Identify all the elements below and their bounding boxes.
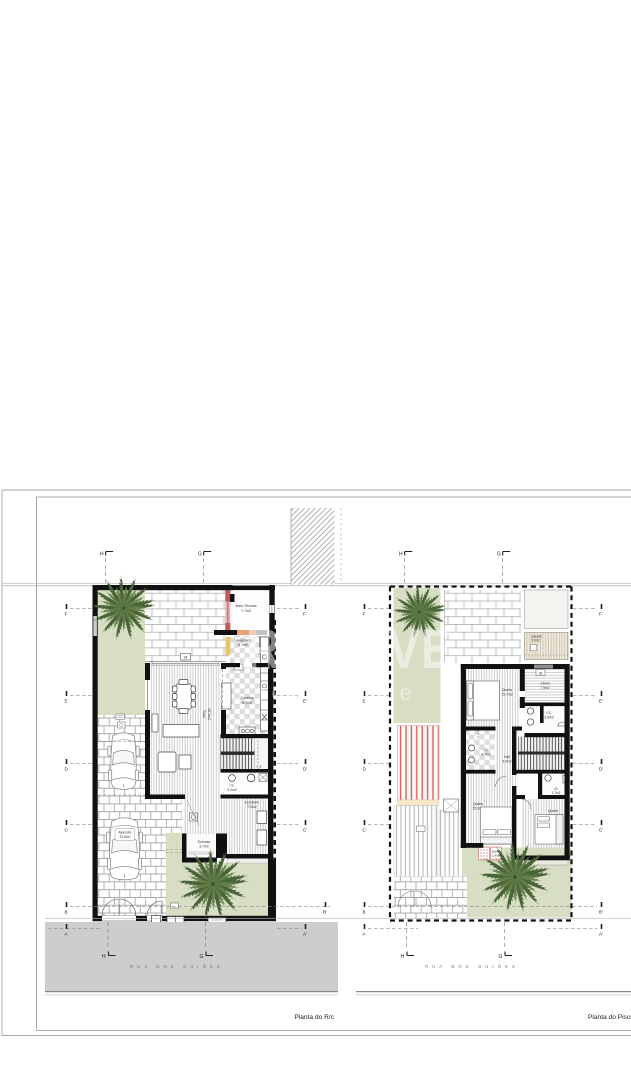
svg-text:H: H <box>100 552 104 558</box>
svg-text:Alpendre: Alpendre <box>118 831 131 835</box>
svg-text:real estate: real estate <box>259 680 417 705</box>
svg-text:Quarto: Quarto <box>502 688 512 692</box>
svg-text:B': B' <box>323 910 327 915</box>
svg-text:Cozinha: Cozinha <box>240 696 253 700</box>
svg-text:H: H <box>399 552 403 558</box>
svg-text:B: B <box>363 910 366 915</box>
svg-text:RUA DOS GUIÕES: RUA DOS GUIÕES <box>130 964 224 969</box>
svg-text:B': B' <box>599 910 603 915</box>
svg-text:G: G <box>200 954 204 960</box>
svg-text:C': C' <box>303 828 307 833</box>
svg-text:Hall: Hall <box>504 755 510 759</box>
svg-text:3.9m2: 3.9m2 <box>544 716 553 720</box>
svg-text:Planta do R/c: Planta do R/c <box>294 1014 334 1021</box>
svg-text:H: H <box>102 954 106 960</box>
svg-text:06: 06 <box>539 671 543 675</box>
svg-text:A': A' <box>303 932 307 937</box>
svg-text:7.9m2: 7.9m2 <box>540 686 549 690</box>
svg-text:3.7m2: 3.7m2 <box>199 845 209 849</box>
svg-text:F': F' <box>599 612 603 617</box>
svg-text:B: B <box>65 910 68 915</box>
svg-text:Quarto: Quarto <box>473 802 483 806</box>
svg-text:Entrada: Entrada <box>198 840 210 844</box>
svg-text:9.9m2: 9.9m2 <box>242 701 252 705</box>
svg-text:G: G <box>499 954 503 960</box>
svg-text:31.8m2: 31.8m2 <box>120 835 131 839</box>
svg-text:E: E <box>65 699 68 704</box>
svg-text:Escritório: Escritório <box>245 801 259 805</box>
svg-text:Quarto: Quarto <box>548 809 558 813</box>
svg-text:D': D' <box>599 767 603 772</box>
svg-text:Área Técnica: Área Técnica <box>235 604 256 608</box>
svg-text:7.7m2: 7.7m2 <box>241 609 251 613</box>
svg-text:7.0m2: 7.0m2 <box>247 805 257 809</box>
svg-text:4.7m2: 4.7m2 <box>481 753 490 757</box>
svg-text:I.S.: I.S. <box>547 711 552 715</box>
svg-text:C': C' <box>599 828 603 833</box>
svg-text:15.7m2: 15.7m2 <box>501 693 512 697</box>
svg-text:5.0m2: 5.0m2 <box>502 760 511 764</box>
svg-text:Sala: Sala <box>202 710 206 717</box>
svg-text:40.1m2: 40.1m2 <box>207 708 211 720</box>
svg-text:F: F <box>363 612 366 617</box>
svg-text:5.7m2: 5.7m2 <box>531 639 540 643</box>
svg-text:G: G <box>497 552 501 558</box>
svg-text:34: 34 <box>184 656 188 660</box>
svg-text:E': E' <box>599 699 603 704</box>
svg-text:3.2m2: 3.2m2 <box>227 788 237 792</box>
svg-text:F': F' <box>303 612 307 617</box>
svg-text:Planta do Piso 1: Planta do Piso 1 <box>588 1014 631 1021</box>
svg-text:I.S.: I.S. <box>484 748 489 752</box>
svg-text:F: F <box>65 612 68 617</box>
svg-text:H: H <box>401 954 405 960</box>
svg-text:1.7m2: 1.7m2 <box>552 791 561 795</box>
svg-text:G: G <box>198 552 202 558</box>
svg-text:I.S.: I.S. <box>229 784 234 788</box>
svg-text:Closet: Closet <box>540 682 549 686</box>
svg-text:A': A' <box>599 932 603 937</box>
svg-text:RUA DOS GUIÕES: RUA DOS GUIÕES <box>425 964 519 969</box>
svg-text:REMAVE: REMAVE <box>246 619 454 681</box>
svg-text:D': D' <box>303 767 307 772</box>
